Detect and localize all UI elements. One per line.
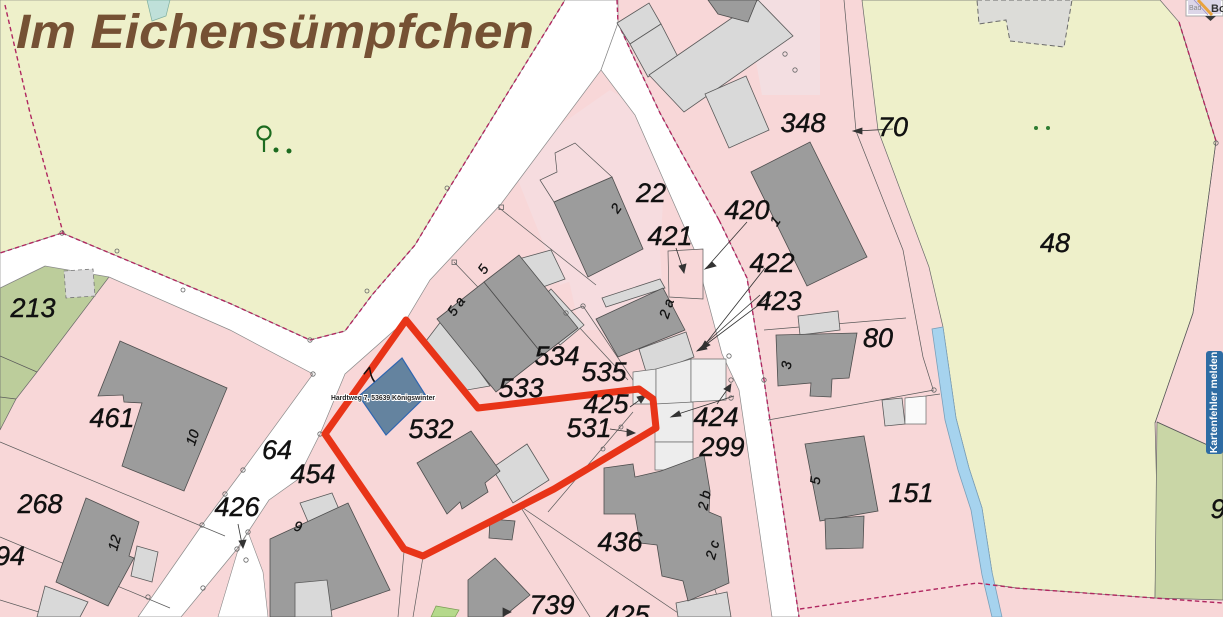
svg-text:532: 532 — [408, 414, 453, 444]
svg-text:94: 94 — [0, 541, 25, 571]
svg-text:5: 5 — [807, 476, 824, 485]
svg-text:213: 213 — [9, 293, 55, 323]
svg-text:22: 22 — [635, 178, 666, 208]
svg-text:80: 80 — [863, 323, 893, 353]
svg-text:436: 436 — [597, 527, 643, 557]
svg-text:Im Eichensümpfchen: Im Eichensümpfchen — [16, 6, 534, 59]
svg-text:Bad: Bad — [1189, 5, 1202, 12]
svg-text:70: 70 — [878, 112, 908, 142]
svg-text:739: 739 — [529, 590, 574, 617]
svg-text:421: 421 — [647, 221, 692, 251]
svg-text:268: 268 — [16, 489, 62, 519]
svg-text:461: 461 — [89, 403, 134, 433]
svg-text:426: 426 — [214, 492, 260, 522]
svg-text:534: 534 — [534, 341, 579, 371]
svg-text:Kartenfehler melden: Kartenfehler melden — [1208, 352, 1220, 454]
svg-text:Hardtweg 7, 53639 Königswinter: Hardtweg 7, 53639 Königswinter — [331, 393, 435, 402]
svg-text:425: 425 — [604, 600, 650, 617]
svg-text:Bo: Bo — [1211, 3, 1223, 15]
svg-text:48: 48 — [1040, 228, 1070, 258]
svg-text:64: 64 — [262, 435, 292, 465]
svg-text:9: 9 — [1210, 494, 1223, 524]
svg-text:151: 151 — [888, 478, 933, 508]
svg-text:454: 454 — [290, 459, 335, 489]
svg-text:535: 535 — [581, 357, 627, 387]
svg-text:348: 348 — [780, 108, 825, 138]
svg-text:423: 423 — [756, 286, 801, 316]
svg-text:531: 531 — [566, 413, 611, 443]
svg-text:422: 422 — [749, 248, 794, 278]
svg-text:533: 533 — [498, 373, 543, 403]
svg-text:299: 299 — [698, 432, 744, 462]
svg-text:424: 424 — [693, 402, 738, 432]
svg-text:420: 420 — [724, 195, 769, 225]
